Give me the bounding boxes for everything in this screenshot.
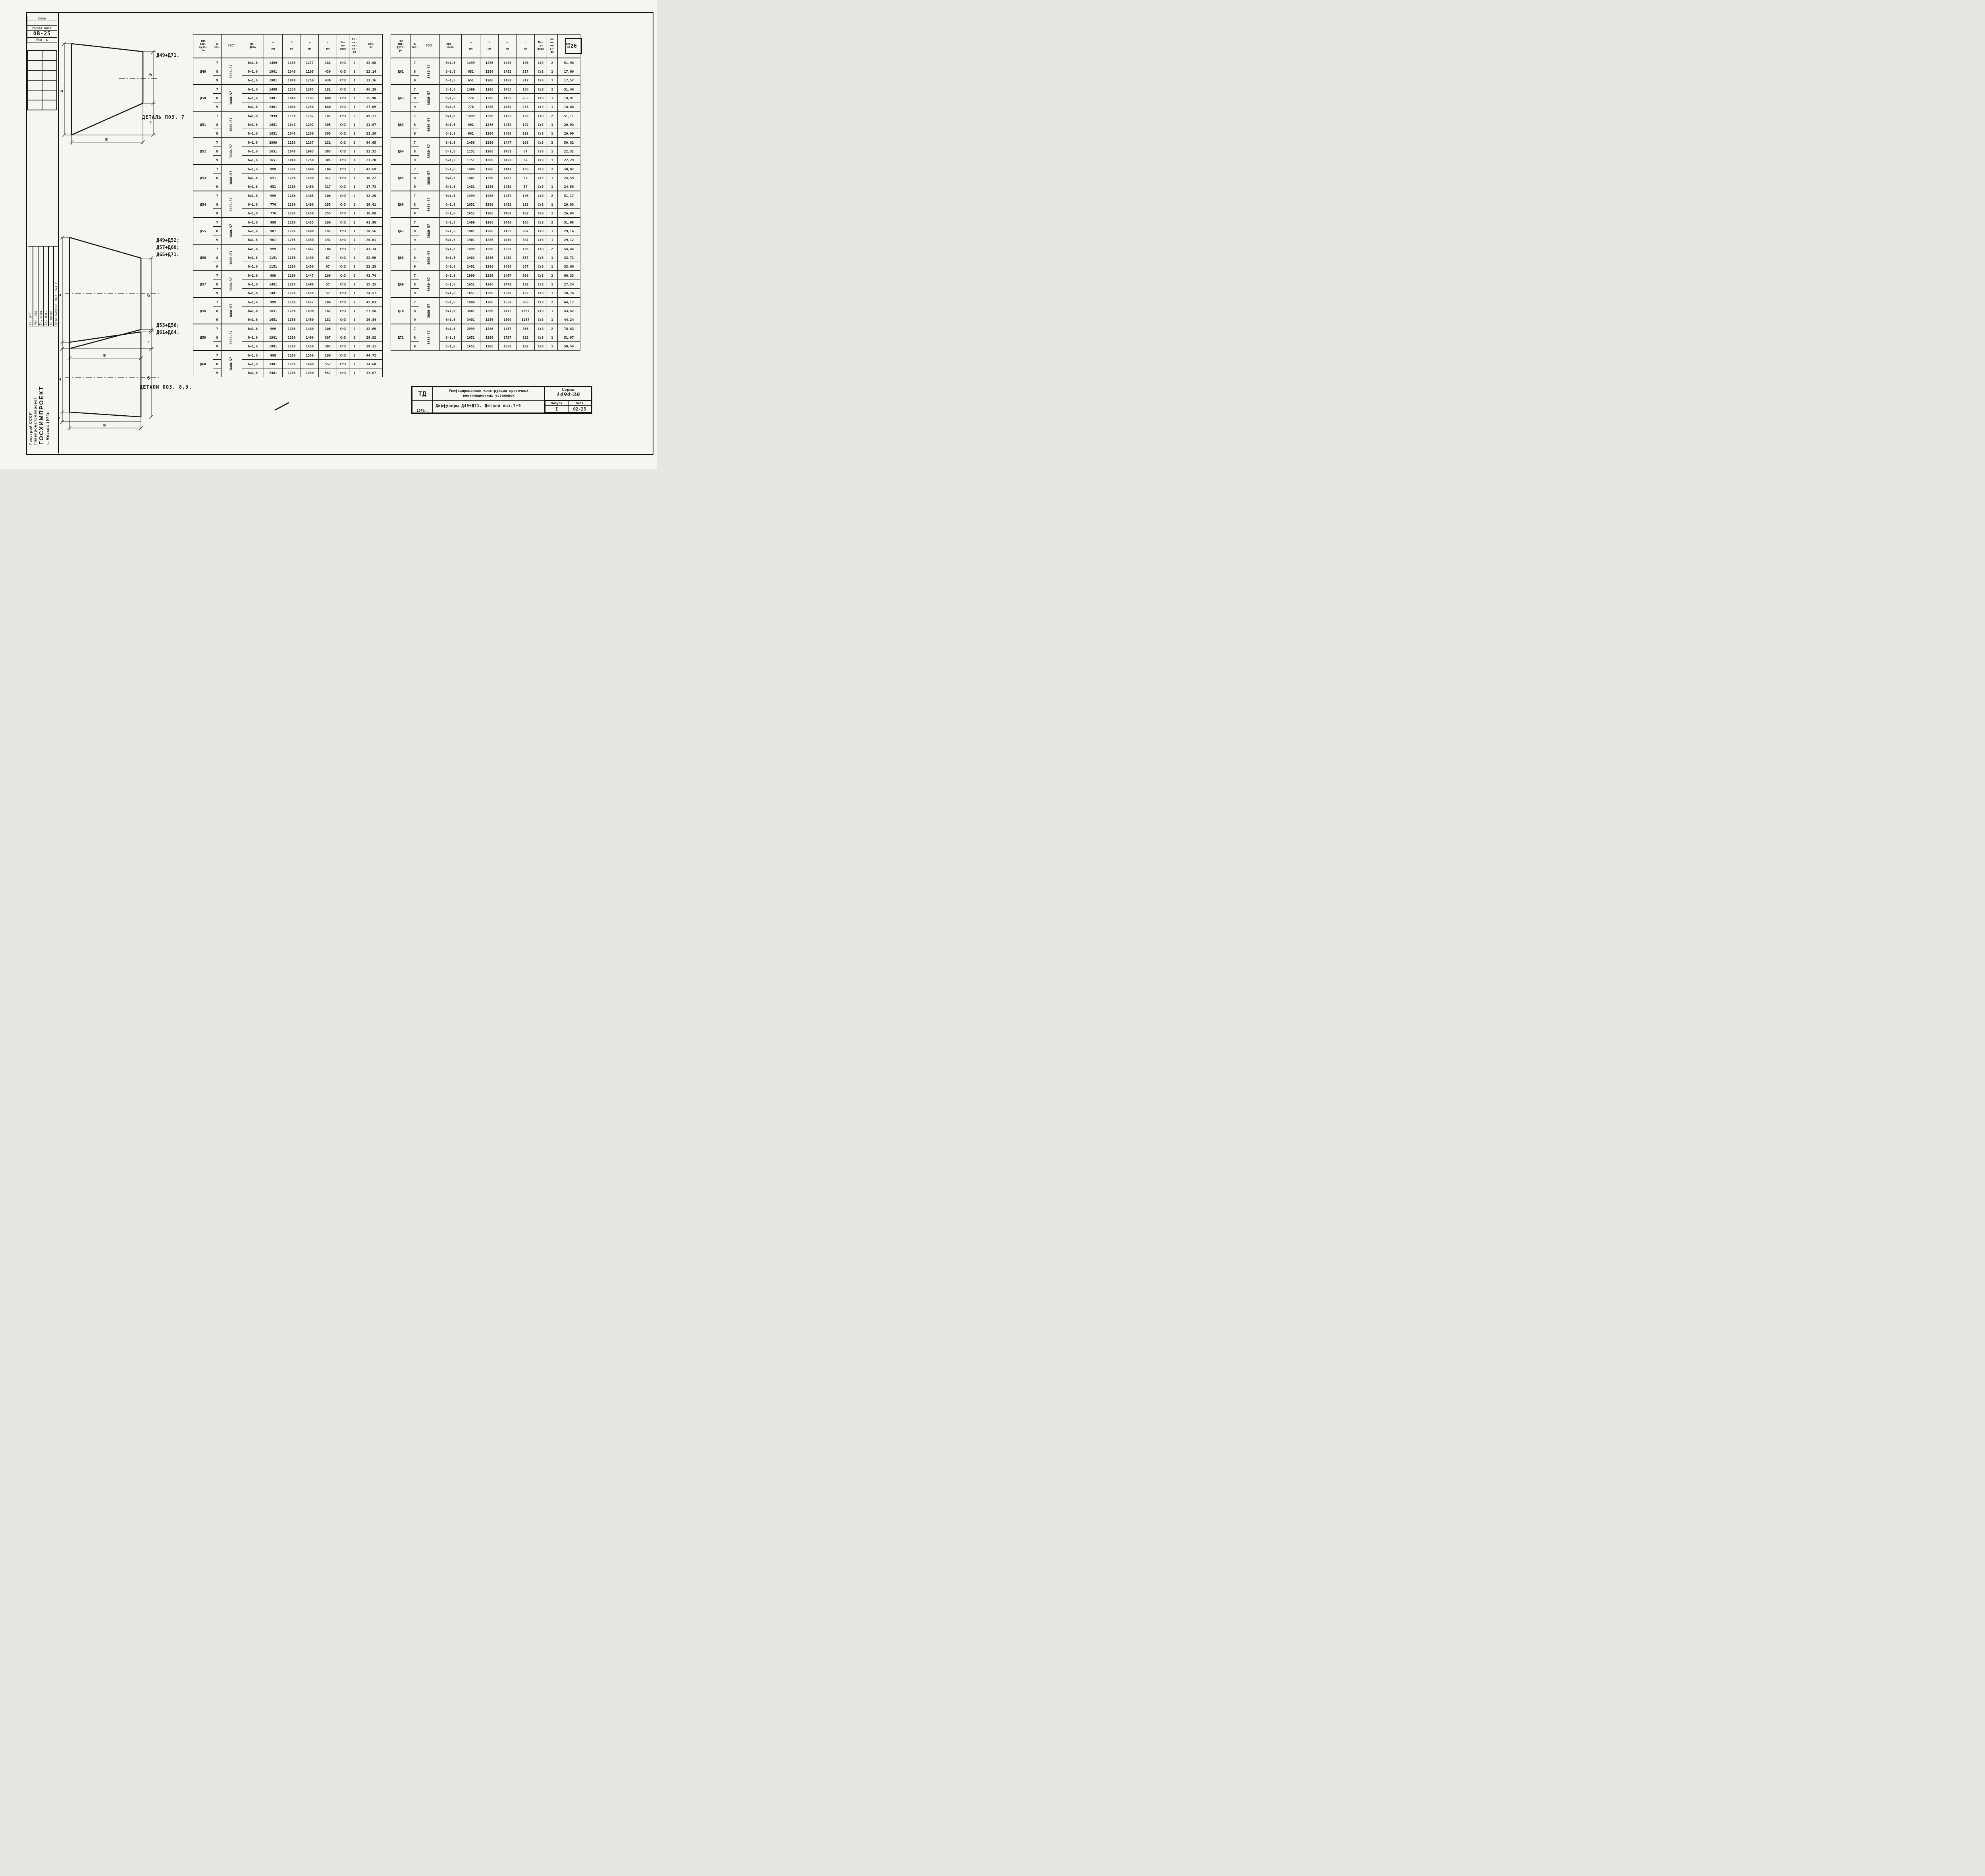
dim-b: 1286 [480,297,499,307]
pos-number: 9 [213,262,221,271]
stamp-shifr-label: Шифр [27,16,57,21]
quantity: 1 [349,200,360,209]
dim-b: 1286 [283,218,301,227]
dim-a: 1651 [461,209,480,218]
dim-a: 1401 [461,182,480,191]
pos-number: 8 [411,307,419,315]
material: Ст3 [337,102,349,112]
dim-a: 1651 [461,280,480,289]
pos-number: 8 [411,333,419,342]
weight: 42,26 [360,191,383,200]
table-row: Д5773680-57б=1,699912861447106Ст3241,74 [193,271,383,280]
dim-b: 1286 [480,76,499,85]
quantity: 1 [547,102,557,112]
pos-number: 8 [213,200,221,209]
dim-b: 1286 [480,227,499,235]
dim-v: 1490 [301,253,319,262]
material: Ст3 [534,120,547,129]
dim-b: 1286 [480,244,499,253]
dim-v: 1277 [301,58,319,67]
quantity: 1 [547,129,557,138]
col-header-2: ГОСТ [419,35,439,58]
material: Ст3 [337,262,349,271]
dim-g: 430 [319,67,337,76]
dim-v: 1472 [498,307,516,315]
pos-number: 7 [213,111,221,120]
col-header-6: вмм [498,35,516,58]
org-line-0: Госстрой СССР [29,334,33,445]
pos-number: 8 [213,360,221,368]
dim-b: 1286 [283,174,301,182]
dim-g: 430 [319,76,337,85]
material: Ст3 [337,164,349,174]
dim-g: 182 [319,307,337,315]
material: Ст3 [337,200,349,209]
dim-g: 557 [516,253,535,262]
sheet-label: Лист [568,401,591,406]
dim-b: 1286 [480,209,499,218]
dim-a: 3401 [461,307,480,315]
material: Ст3 [337,351,349,360]
dim-a: 999 [264,164,283,174]
weight: 51,46 [558,85,580,94]
profile: б=1,6 [242,271,264,280]
col-header-4: амм [264,35,283,58]
stamp-marka-value: ОВ-25 [27,31,57,38]
profile: б=1,6 [439,174,461,182]
dim-b: 1286 [480,102,499,112]
dim-v: 1490 [301,360,319,368]
signature-stamp: Гл. исп.Нач. отд.Гл. спец.Ст. инж.Н. кон… [28,246,59,326]
quantity: 2 [547,138,557,147]
dim-v: 1237 [301,111,319,120]
weight: 29,12 [558,235,580,245]
dim-b: 1040 [283,147,301,156]
material: Ст3 [337,235,349,245]
dim-b: 1286 [480,129,499,138]
dim-v: 1457 [301,297,319,307]
material: Ст3 [534,262,547,271]
table-row: Д6473680-57б=1,6149912861447106Ст3250,82 [391,138,580,147]
quantity: 2 [547,164,557,174]
weight: 42,69 [360,164,383,174]
diffuser-type: Д52 [193,138,213,164]
profile: б=1,6 [242,156,264,165]
dim-v: 1450 [301,235,319,245]
dim-v-label: в [103,422,106,428]
dim-a: 1651 [461,342,480,351]
quantity: 1 [349,315,360,324]
dim-v: 1472 [498,280,516,289]
quantity: 1 [349,333,360,342]
dim-b: 1040 [283,156,301,165]
pos-number: 7 [411,297,419,307]
dim-b: 1286 [480,271,499,280]
material: Ст3 [534,182,547,191]
dim-a: 1499 [461,164,480,174]
dim-g: 255 [516,102,535,112]
dim-v: 1250 [301,129,319,138]
dim-g: 182 [516,289,535,298]
quantity: 1 [547,209,557,218]
dim-v: 1195 [301,67,319,76]
pos-number: 8 [213,307,221,315]
quantity: 1 [547,307,557,315]
diffuser-type: Д61 [391,58,411,85]
dim-a: 776 [264,200,283,209]
dim-g: 182 [516,209,535,218]
diagram2-range-label-3: Д65+Д71. [156,252,179,257]
dim-a: 1999 [461,271,480,280]
material: Ст3 [534,102,547,112]
profile: б=1,6 [242,209,264,218]
table-row: Д6673680-57б=1,6149912861457106Ст3251,17 [391,191,580,200]
dim-a: 999 [264,351,283,360]
diagram3-range-label-2: Д61+Д64. [156,330,179,335]
weight: 18,91 [558,94,580,102]
quantity: 1 [547,76,557,85]
profile: б=1,6 [242,368,264,377]
col-header-7: гмм [319,35,337,58]
table-row: Д5873680-57б=1,699912861457106Ст3242,03 [193,297,383,307]
quantity: 1 [349,289,360,298]
weight: 20,01 [360,235,383,245]
col-header-3: Про -филь [242,35,264,58]
quantity: 2 [349,111,360,120]
col-header-7: гмм [516,35,535,58]
quantity: 2 [349,351,360,360]
dim-v: 1550 [498,297,516,307]
quantity: 2 [349,297,360,307]
quantity: 2 [547,111,557,120]
material: Ст3 [534,147,547,156]
dim-v: 1490 [301,227,319,235]
profile: б=1,6 [242,351,264,360]
dim-v: 1490 [301,200,319,209]
weight: 51,98 [558,218,580,227]
pos-number: 7 [213,271,221,280]
dim-b: 1286 [283,351,301,360]
dim-g: 366 [516,297,535,307]
weight: 27,09 [360,102,383,112]
table-row: Д5673680-57б=1,699912861447106Ст3241,74 [193,244,383,253]
dim-b: 1286 [283,342,301,351]
diffuser-type: Д60 [193,351,213,377]
weight: 18,22 [360,174,383,182]
gost-number: 3680-57 [221,191,242,218]
material: Ст3 [534,315,547,324]
pos-number: 7 [213,58,221,67]
diffuser-type: Д59 [193,324,213,351]
dim-a: 2401 [461,262,480,271]
dim-g: 106 [319,244,337,253]
dim-b: 1286 [283,307,301,315]
quantity: 2 [547,324,557,333]
table-row: Д6373680-57б=1,6149912861455106Ст3251,11 [391,111,580,120]
quantity: 1 [349,253,360,262]
quantity: 2 [349,85,360,94]
profile: б=1,6 [439,315,461,324]
dim-v: 1727 [498,333,516,342]
dim-b: 1286 [480,218,499,227]
dim-v: 1450 [301,182,319,191]
dim-a: 1499 [461,244,480,253]
dim-v: 1905 [301,147,319,156]
profile: б=1,6 [439,333,461,342]
pos-number: 9 [411,182,419,191]
dim-b: 1286 [283,164,301,174]
gost-number: 3680-57 [419,138,439,164]
title-block-subtitle: Диффузоры Д49+Д71. Детали поз.7+9 [433,400,545,413]
table-row: Д5173680-57б=1,6199911501237181Ст3249,11 [193,111,383,120]
dim-v: 1452 [498,200,516,209]
material: Ст3 [337,297,349,307]
pos-number: 9 [213,315,221,324]
table-row: Д4973680-57б=1,6149911501277181Ст3242,68 [193,58,383,67]
diffuser-type: Д55 [193,218,213,244]
dim-v: 1550 [498,244,516,253]
dim-v: 1465 [498,85,516,94]
table-row: Д5073680-57б=1,6149911501385181Ст3246,28 [193,85,383,94]
weight: 51,11 [558,111,580,120]
quantity: 1 [349,307,360,315]
col-header-4: амм [461,35,480,58]
dim-b: 1286 [480,235,499,245]
dim-b: 1286 [283,244,301,253]
weight: 23,16 [360,76,383,85]
dim-b: 1150 [283,111,301,120]
dim-g: 182 [516,200,535,209]
weight: 49,11 [360,111,383,120]
issue-value: I [545,406,568,413]
dim-a: 901 [461,120,480,129]
diagram1-range-label: Д49+Д71. [156,52,179,58]
issue-label: Выпуск [545,401,568,406]
quantity: 1 [547,94,557,102]
dim-b: 1286 [480,111,499,120]
dim-v: 1450 [498,182,516,191]
dim-a: 1499 [461,85,480,94]
dim-a: 1499 [461,191,480,200]
pos-number: 7 [213,85,221,94]
dim-b: 1286 [283,209,301,218]
material: Ст3 [534,342,547,351]
weight: 27,24 [558,280,580,289]
dim-g: 255 [516,94,535,102]
diagram2-range-label-2: Д57+Д60; [156,245,179,250]
dim-b: 1286 [480,182,499,191]
pos-number: 8 [213,333,221,342]
dim-a: 2999 [461,324,480,333]
quantity: 1 [349,182,360,191]
quantity: 2 [547,297,557,307]
profile: б=1,6 [242,129,264,138]
dim-b: 1286 [480,138,499,147]
weight: 64,65 [360,138,383,147]
material: Ст3 [337,280,349,289]
dim-a: 1499 [461,58,480,67]
diffuser-type: Д51 [193,111,213,138]
pos-number: 7 [411,138,419,147]
dim-a: 1499 [461,111,480,120]
dim-a: 651 [264,182,283,191]
pos-number: 9 [411,289,419,298]
dim-g: 182 [516,342,535,351]
dim-v: 1650 [498,342,516,351]
weight: 46,28 [360,85,383,94]
material: Ст3 [337,218,349,227]
profile: б=1,6 [242,280,264,289]
weight: 41,74 [360,244,383,253]
pos-number: 9 [213,342,221,351]
quantity: 1 [349,147,360,156]
table-row: Д6073680-57б=1,699912861550106Ст3244,72 [193,351,383,360]
profile: б=1,6 [439,342,461,351]
pos-number: 7 [411,244,419,253]
profile: б=1,6 [439,147,461,156]
quantity: 2 [349,164,360,174]
weight: 42,68 [360,58,383,67]
quantity: 2 [349,271,360,280]
weight: 44,72 [360,351,383,360]
pos-number: 8 [213,147,221,156]
dim-v: 1455 [498,111,516,120]
dim-a: 2401 [264,102,283,112]
stamp-inv-label: Инв. № [27,38,57,42]
dim-a: 1151 [461,147,480,156]
gost-number: 3680-57 [221,164,242,191]
page-number: 26 [565,38,582,54]
profile: б=1,6 [439,85,461,94]
quantity: 1 [547,156,557,165]
dim-b-label: б [147,376,150,381]
weight: 42,69 [360,324,383,333]
dim-g: 192 [516,129,535,138]
dim-v: 1490 [301,333,319,342]
dim-b: 1286 [283,315,301,324]
dim-a: 2401 [264,368,283,377]
dim-a: 1651 [264,307,283,315]
dim-a: 999 [264,297,283,307]
dim-v: 1480 [498,58,516,67]
diffuser-type: Д56 [193,244,213,271]
dim-b: 1286 [480,280,499,289]
material: Ст3 [534,174,547,182]
material: Ст3 [534,218,547,227]
dim-b: 1286 [480,289,499,298]
dim-a: 1151 [461,156,480,165]
quantity: 1 [547,67,557,76]
table-row: Д5473680-57б=1,699912861465106Ст3242,26 [193,191,383,200]
dim-g: 106 [516,164,535,174]
pos-number: 8 [213,227,221,235]
quantity: 1 [547,235,557,245]
profile: б=1,6 [439,253,461,262]
pos-number: 9 [411,342,419,351]
dim-v: 1450 [301,368,319,377]
weight: 32,32 [360,147,383,156]
diffuser-type: Д70 [391,297,411,324]
material: Ст3 [534,271,547,280]
dim-a: 1499 [264,58,283,67]
weight: 25,90 [360,94,383,102]
dim-a: 999 [264,191,283,200]
dim-b: 1286 [283,297,301,307]
profile: б=1,6 [242,289,264,298]
weight: 19,41 [360,200,383,209]
profile: б=1,6 [439,324,461,333]
dim-g: 307 [516,235,535,245]
profile: б=1,6 [439,191,461,200]
col-header-3: Про -филь [439,35,461,58]
dim-b: 1286 [283,289,301,298]
title-block-series: Серия 1494-26 [545,387,592,400]
title-block-code: ТД [412,387,433,400]
dim-g: 181 [319,58,337,67]
quantity: 1 [349,227,360,235]
dim-g: 106 [319,191,337,200]
dim-a: 2999 [264,138,283,147]
signature-row-1: Нач. отд. [33,246,38,326]
dim-g: 106 [516,111,535,120]
dim-a: 2401 [264,94,283,102]
dim-g: 307 [319,333,337,342]
profile: б=1,6 [439,262,461,271]
quantity: 1 [547,280,557,289]
dim-a: 776 [461,102,480,112]
dim-v: 1480 [301,324,319,333]
dim-g: 67 [516,147,535,156]
material: Ст3 [337,333,349,342]
dim-b: 1286 [283,200,301,209]
quantity: 1 [547,120,557,129]
profile: б=1,6 [242,102,264,112]
dim-v: 1447 [301,244,319,253]
org-line-1: Главпромстройпроект [33,334,37,445]
dim-b: 1286 [480,253,499,262]
col-header-2: ГОСТ [221,35,242,58]
dim-v: 1452 [498,227,516,235]
gost-number: 3680-57 [221,58,242,85]
dim-b: 1286 [283,324,301,333]
diffuser-type: Д57 [193,271,213,297]
profile: б=1,6 [242,333,264,342]
dim-v: 1452 [498,94,516,102]
dim-a: 651 [264,174,283,182]
dim-v: 1490 [301,280,319,289]
gost-number: 3680-57 [419,244,439,271]
col-header-8: Ма-те-риал [534,35,547,58]
weight: 26,84 [558,209,580,218]
dim-a: 1901 [461,227,480,235]
dim-b: 1150 [283,85,301,94]
table-row: Д5373680-57б=1,699912861480106Ст3242,69 [193,164,383,174]
org-line-2: ГОСХИМПРОЕКТ [38,334,45,445]
quantity: 1 [349,129,360,138]
dim-b: 1286 [480,120,499,129]
pos-number: 9 [213,368,221,377]
dim-g: 317 [319,174,337,182]
dim-v: 1450 [301,315,319,324]
col-header-8: Ма-те-риал [337,35,349,58]
quantity: 1 [349,120,360,129]
dim-a: 999 [264,324,283,333]
diffuser-type: Д68 [391,244,411,271]
title-block: ТД Унифицированные конструкции приточных… [411,386,592,414]
material: Ст3 [337,129,349,138]
dim-a: 999 [264,244,283,253]
table-row: Д6973680-57б=1,6199912861457366Ст3260,33 [391,271,580,280]
